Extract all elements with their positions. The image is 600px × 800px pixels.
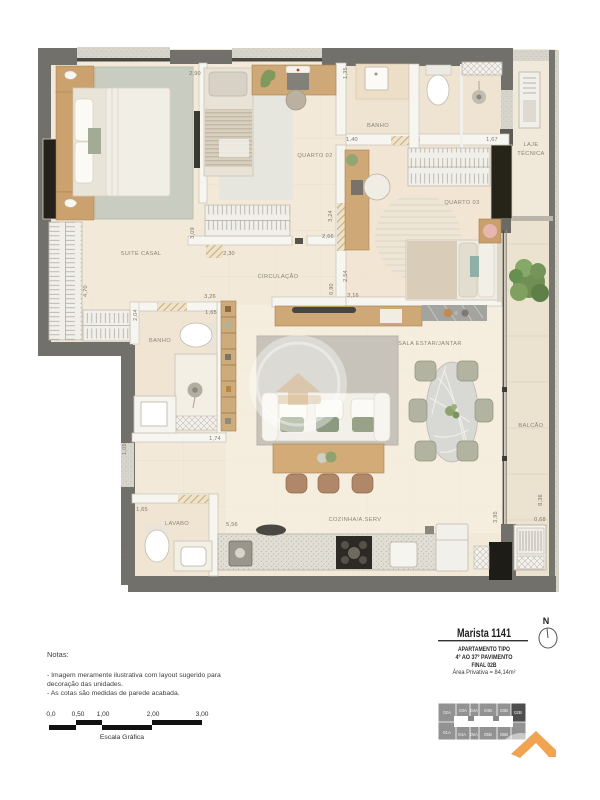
svg-text:2,30: 2,30 [223,251,235,257]
svg-text:SALA ESTAR/JANTAR: SALA ESTAR/JANTAR [398,341,462,347]
svg-text:LAVABO: LAVABO [165,521,189,527]
svg-text:1,74: 1,74 [209,436,221,442]
svg-text:BANHO: BANHO [367,123,389,129]
svg-text:2,66: 2,66 [322,234,334,240]
svg-text:1,40: 1,40 [346,137,358,143]
svg-text:3,09: 3,09 [190,227,196,239]
svg-text:3,00: 3,00 [196,711,209,718]
svg-text:LAJE: LAJE [524,142,539,148]
svg-text:QUARTO 02: QUARTO 02 [297,153,332,159]
svg-text:2,90: 2,90 [189,71,201,77]
svg-text:05B: 05B [484,732,492,737]
svg-text:Marista 1141: Marista 1141 [457,626,511,640]
svg-text:0,68: 0,68 [534,517,546,523]
svg-text:N: N [543,616,550,626]
svg-text:FINAL 02B: FINAL 02B [472,662,497,669]
svg-text:2,00: 2,00 [147,711,160,718]
svg-text:1,67: 1,67 [486,137,498,143]
svg-text:03B: 03B [500,708,508,713]
svg-text:APARTAMENTO TIPO: APARTAMENTO TIPO [458,646,510,653]
svg-text:Notas:: Notas: [47,650,69,659]
svg-text:2,54: 2,54 [343,270,349,282]
svg-text:CIRCULAÇÃO: CIRCULAÇÃO [258,273,299,280]
svg-text:1,65: 1,65 [136,507,148,513]
svg-text:BALCÃO: BALCÃO [518,422,543,429]
svg-text:01A: 01A [443,730,451,735]
svg-text:2,04: 2,04 [133,309,139,321]
svg-text:1,00: 1,00 [97,711,110,718]
svg-text:0,0: 0,0 [46,711,55,718]
svg-text:05A: 05A [470,732,478,737]
svg-text:COZINHA/A.SERV: COZINHA/A.SERV [329,517,382,523]
svg-text:Escala Gráfica: Escala Gráfica [100,734,144,741]
svg-text:Área Privativa = 84,14m²: Área Privativa = 84,14m² [453,667,517,676]
svg-text:4,70: 4,70 [83,285,89,297]
svg-text:04A: 04A [470,708,478,713]
svg-text:SUITE CASAL: SUITE CASAL [121,251,162,257]
svg-text:TÉCNICA: TÉCNICA [517,150,544,157]
svg-text:0,90: 0,90 [329,283,335,295]
svg-text:03A: 03A [459,708,467,713]
svg-text:8,36: 8,36 [538,494,544,506]
svg-text:- Imagem meramente ilustrativa: - Imagem meramente ilustrativa com layou… [47,672,221,679]
svg-text:04A: 04A [458,732,466,737]
svg-text:decoração das unidades.: decoração das unidades. [47,681,123,688]
svg-text:5,56: 5,56 [226,522,238,528]
svg-text:0,50: 0,50 [72,711,85,718]
svg-text:4º AO 37º PAVIMENTO: 4º AO 37º PAVIMENTO [456,654,513,661]
svg-text:1,15: 1,15 [124,549,130,561]
svg-text:QUARTO 03: QUARTO 03 [444,200,479,206]
svg-text:02A: 02A [443,710,451,715]
svg-text:1,35: 1,35 [343,67,349,79]
svg-text:04B: 04B [484,708,492,713]
svg-text:06B: 06B [500,732,508,737]
svg-text:3,26: 3,26 [204,294,216,300]
svg-text:1,05: 1,05 [122,443,128,455]
svg-text:3,24: 3,24 [328,210,334,222]
svg-text:3,95: 3,95 [493,511,499,523]
svg-text:1,65: 1,65 [205,310,217,316]
svg-text:- As cotas são medidas de pare: - As cotas são medidas de parede acabada… [47,690,180,697]
svg-text:02B: 02B [514,710,522,715]
svg-text:BANHO: BANHO [149,338,171,344]
svg-text:3,16: 3,16 [347,293,359,299]
